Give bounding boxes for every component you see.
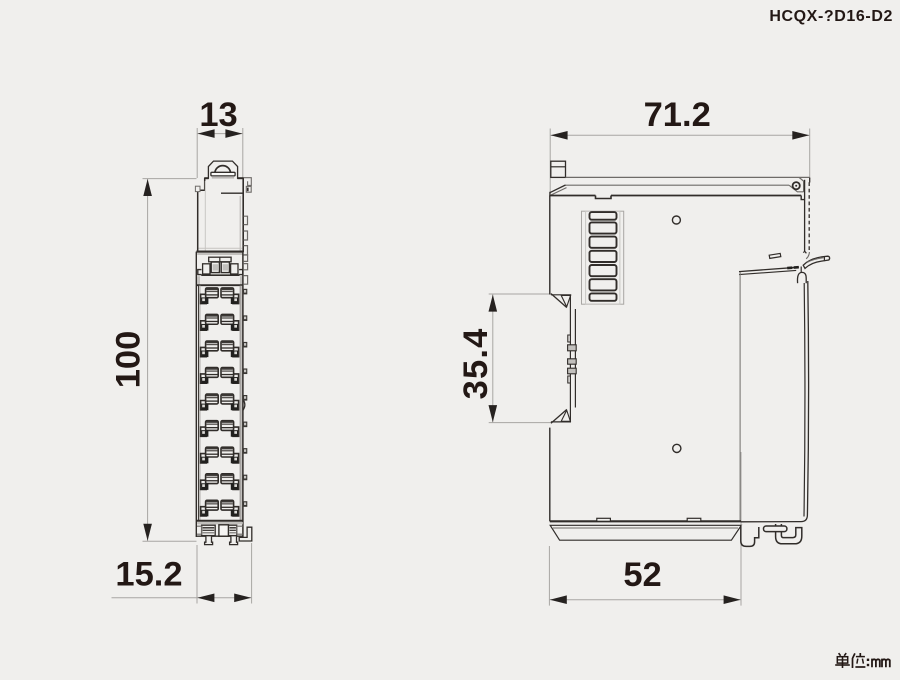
svg-text:35.4: 35.4 — [457, 327, 495, 399]
svg-text:13: 13 — [199, 96, 237, 134]
svg-text:HCQX-?D16-D2: HCQX-?D16-D2 — [769, 8, 893, 25]
svg-text:100: 100 — [110, 331, 148, 389]
svg-text:52: 52 — [623, 556, 661, 594]
svg-text:15.2: 15.2 — [115, 555, 182, 593]
svg-text:71.2: 71.2 — [644, 96, 711, 134]
